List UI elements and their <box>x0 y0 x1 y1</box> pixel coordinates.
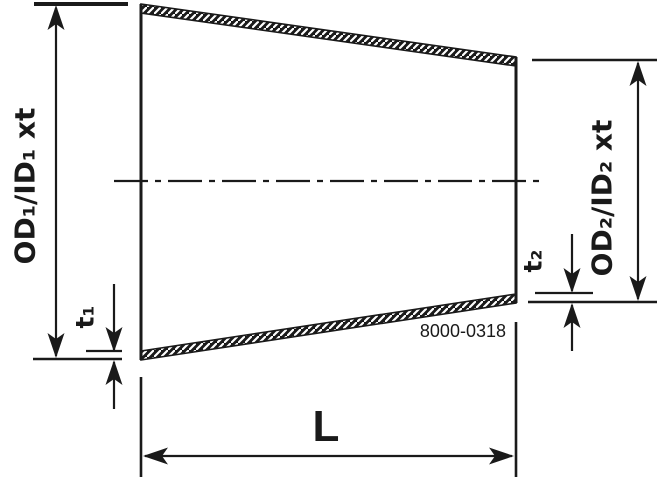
od1-label: OD₁/ID₁ xt <box>9 108 42 265</box>
od1-dimension: OD₁/ID₁ xt <box>9 4 129 359</box>
t2-dimension: t₂ <box>519 234 594 351</box>
od2-label: OD₂/ID₂ xt <box>586 120 619 277</box>
length-label: L <box>313 402 340 451</box>
t1-dimension: t₁ <box>71 284 123 409</box>
reducer-top-wall <box>141 4 516 66</box>
reducer-drawing-svg: OD₁/ID₁ xt t₁ OD₂/ID₂ xt t₂ <box>0 0 659 477</box>
reducer-technical-drawing: OD₁/ID₁ xt t₁ OD₂/ID₂ xt t₂ <box>0 0 659 477</box>
reducer-body <box>114 4 546 360</box>
drawing-number: 8000-0318 <box>420 321 506 341</box>
t1-label: t₁ <box>71 306 100 329</box>
t2-label: t₂ <box>519 250 548 273</box>
